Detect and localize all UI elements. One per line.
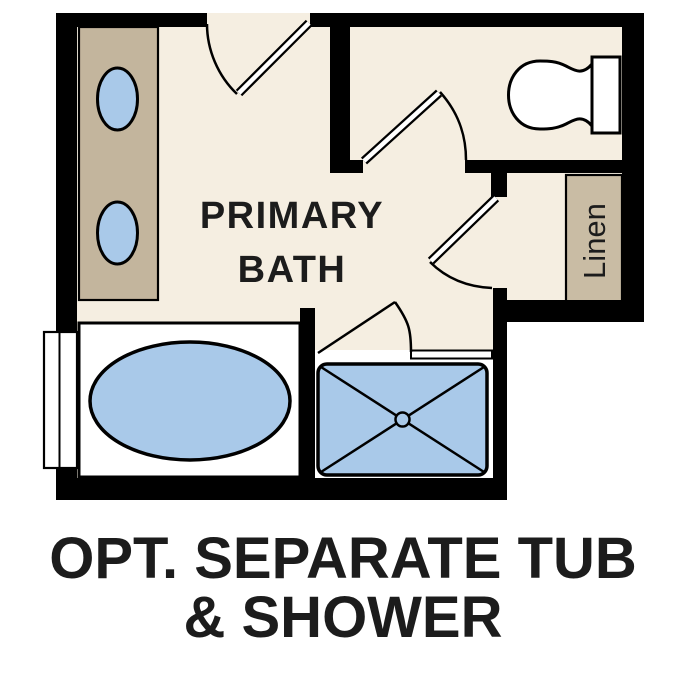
window-icon bbox=[44, 332, 77, 468]
room-label-line1: PRIMARY bbox=[200, 195, 384, 237]
floor-plan: PRIMARY BATH Linen OPT. SEPARATE TUB & S… bbox=[0, 0, 687, 687]
walk-in-shower-icon bbox=[315, 350, 493, 478]
wall-toilet-room-left bbox=[330, 13, 350, 173]
room-label-line2: BATH bbox=[238, 249, 347, 291]
linen-label: Linen bbox=[577, 203, 612, 279]
shower-drain-icon bbox=[396, 413, 410, 427]
caption-line1: OPT. SEPARATE TUB bbox=[49, 526, 637, 591]
wall-shower-right bbox=[493, 288, 507, 500]
toilet-tank bbox=[592, 57, 620, 133]
wall-bottom bbox=[56, 478, 507, 500]
wall-hall-door-stub bbox=[491, 173, 507, 197]
caption-line2: & SHOWER bbox=[184, 585, 503, 650]
floor-plan-canvas: PRIMARY BATH Linen OPT. SEPARATE TUB & S… bbox=[0, 0, 687, 687]
wall-linen-bottom bbox=[493, 300, 644, 322]
shower-glass-panel bbox=[411, 351, 492, 359]
sink-icon bbox=[98, 68, 138, 130]
wall-toilet-room-left-foot bbox=[330, 160, 363, 173]
toilet-bowl bbox=[509, 61, 593, 129]
sink-icon bbox=[98, 202, 138, 264]
toilet-icon bbox=[509, 57, 621, 133]
wall-toilet-room-bottom bbox=[465, 160, 644, 173]
wall-tub-shower-divider bbox=[300, 308, 315, 478]
wall-left-upper bbox=[56, 13, 77, 332]
wall-top-right bbox=[310, 13, 644, 27]
wall-top-left bbox=[56, 13, 207, 27]
soaking-tub-icon bbox=[90, 342, 290, 460]
